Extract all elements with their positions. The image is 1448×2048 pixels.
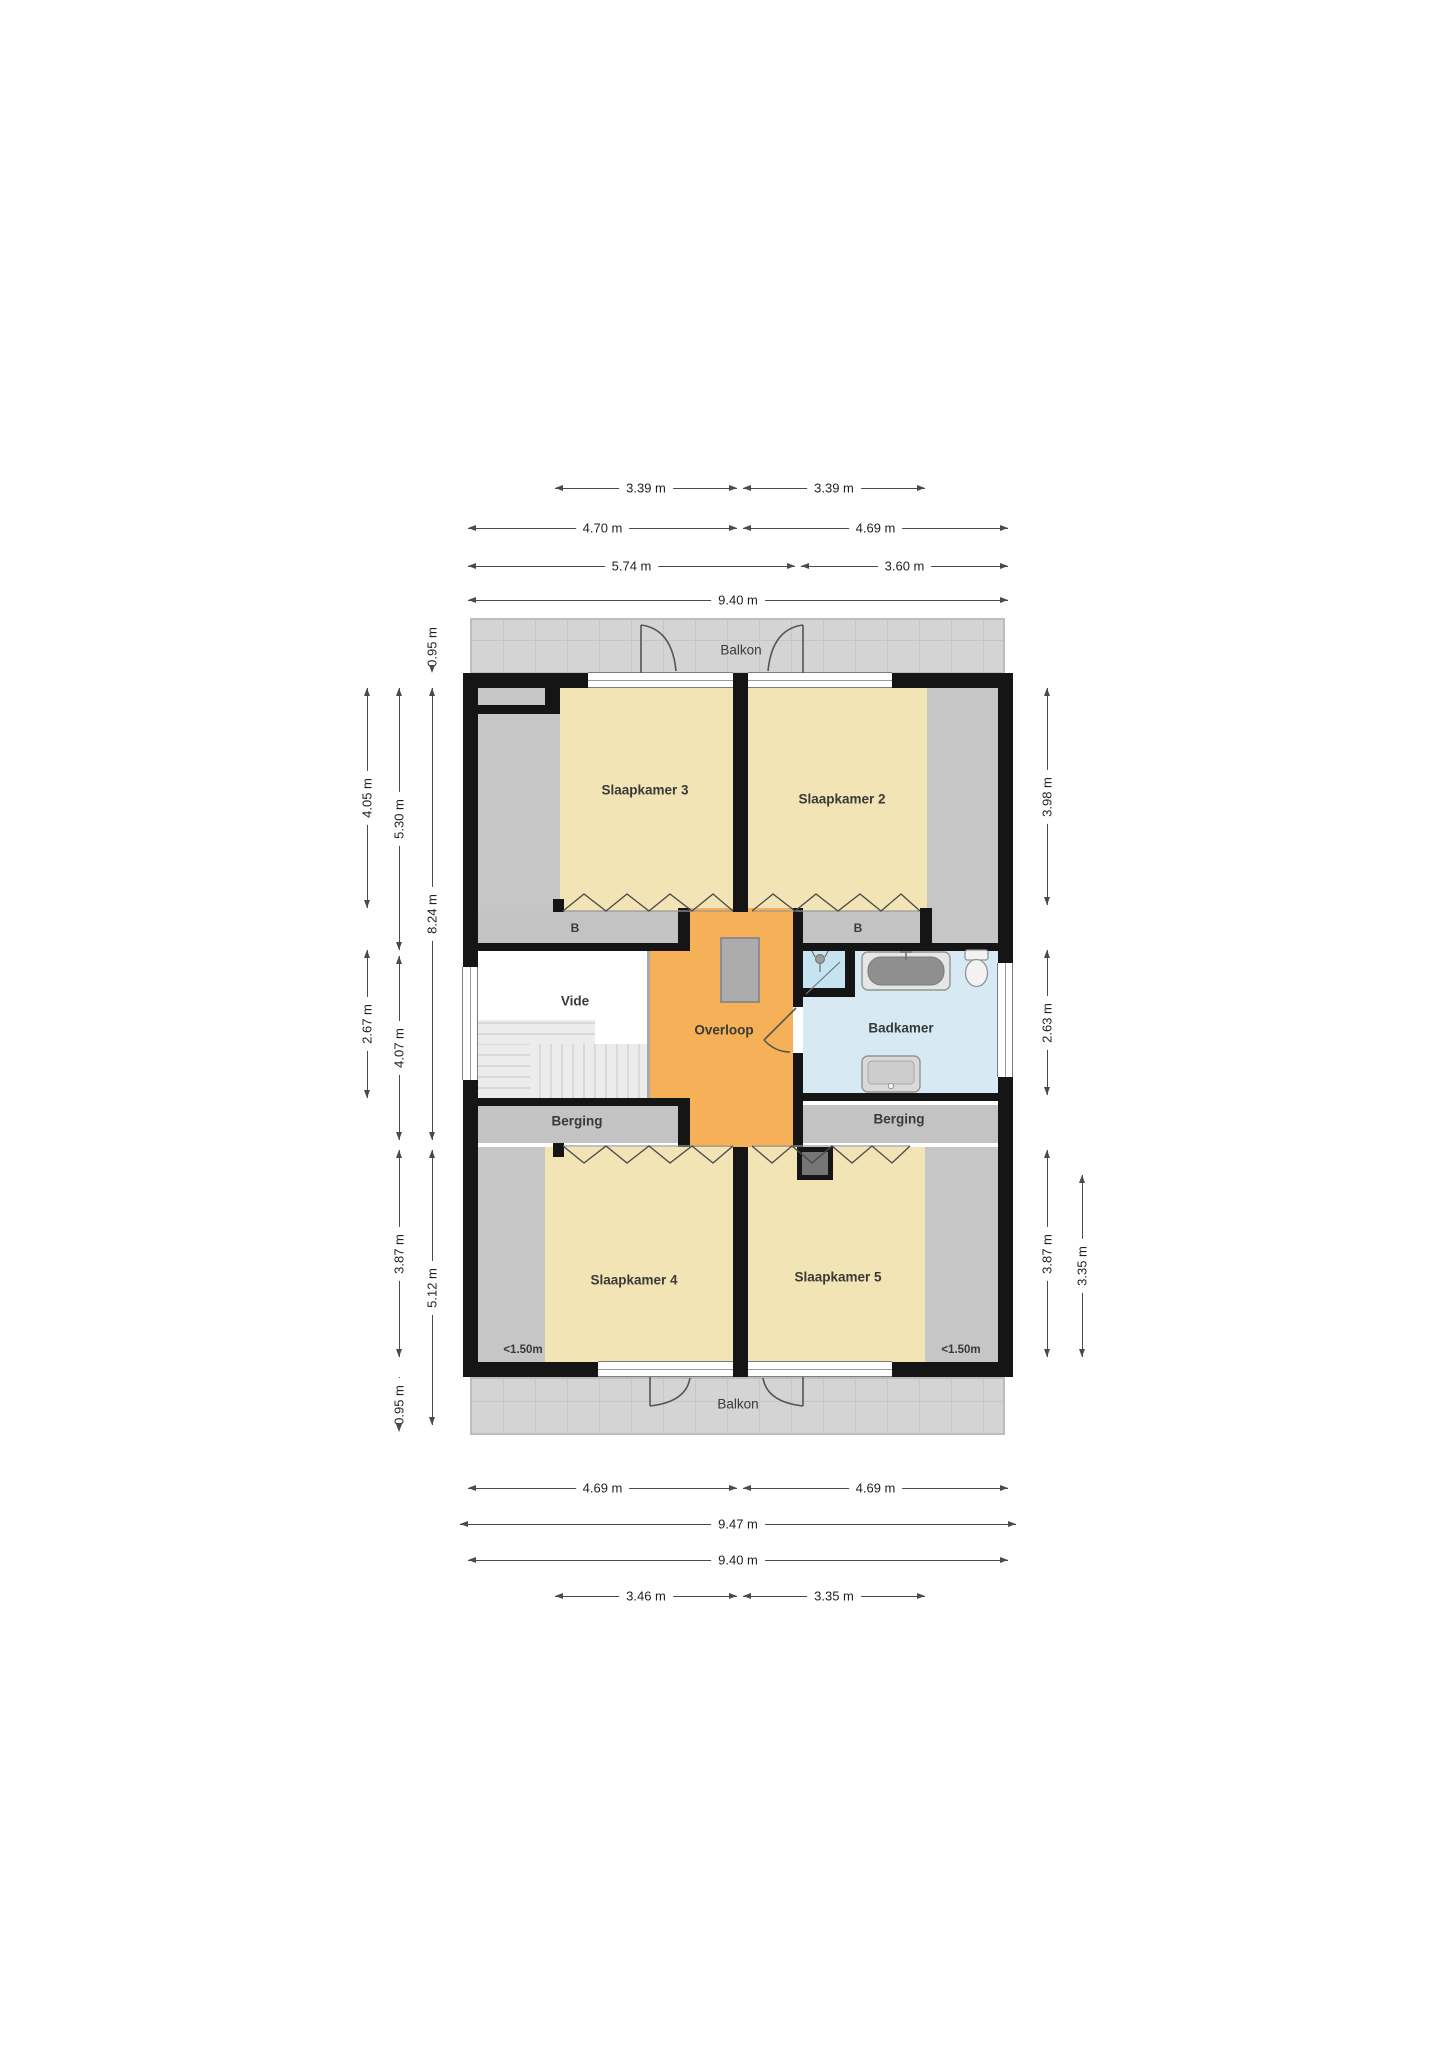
overloop-cabinet — [720, 937, 760, 1003]
wall-divider-bottom-bedrooms — [733, 1147, 748, 1362]
room-slaapkamer4 — [545, 1147, 733, 1362]
wall-closet-right-pier — [920, 908, 932, 943]
dim-bottom-r4-left: 3.46 m — [555, 1596, 737, 1597]
room-slaapkamer3 — [560, 688, 735, 912]
dim-top-r4-total: 9.40 m — [468, 600, 1008, 601]
dim-left-407: 4.07 m — [399, 956, 400, 1140]
dim-top-r2-right: 4.69 m — [743, 528, 1008, 529]
label-low-headroom-right: <1.50m — [941, 1344, 980, 1356]
room-slaapkamer2 — [748, 688, 927, 943]
room-slaapkamer5-low-strip — [925, 1147, 998, 1362]
dim-left-512: 5.12 m — [432, 1150, 433, 1425]
wall-closet-left-right — [678, 908, 690, 951]
label-badkamer: Badkamer — [868, 1021, 933, 1036]
wall-bifold-pier-bottom — [553, 1143, 564, 1157]
dim-left-bedroom-top: 4.05 m — [367, 688, 368, 908]
dim-left-bedroom-bottom: 3.87 m — [399, 1150, 400, 1357]
dim-left-530: 5.30 m — [399, 688, 400, 950]
window-bottom-right — [748, 1361, 892, 1377]
dim-top-r1-right: 3.39 m — [743, 488, 925, 489]
label-balkon-bottom: Balkon — [717, 1397, 758, 1412]
dim-top-r3-left: 5.74 m — [468, 566, 795, 567]
dim-bottom-r1-right: 4.69 m — [743, 1488, 1008, 1489]
window-left-wall — [462, 967, 478, 1080]
dim-bottom-r2-total: 9.47 m — [460, 1524, 1016, 1525]
label-overloop: Overloop — [694, 1023, 753, 1038]
wall-berging-left-top — [463, 1098, 690, 1106]
dim-right-badkamer: 2.63 m — [1047, 950, 1048, 1095]
label-slaapkamer3: Slaapkamer 3 — [601, 783, 688, 798]
dim-top-r2-left: 4.70 m — [468, 528, 737, 529]
dim-bottom-r1-left: 4.69 m — [468, 1488, 737, 1489]
label-low-headroom-left: <1.50m — [503, 1344, 542, 1356]
dim-left-balcony-top: 0.95 m — [432, 620, 433, 673]
room-slaapkamer2-low-strip — [927, 688, 998, 943]
dim-bottom-r4-right: 3.35 m — [743, 1596, 925, 1597]
wall-divider-top-bedrooms — [733, 683, 748, 912]
wall-shower-right — [845, 950, 855, 992]
wall-berging-left-right — [678, 1098, 690, 1147]
window-top-left — [588, 672, 733, 688]
dim-top-r1-left: 3.39 m — [555, 488, 737, 489]
hall-lower-column — [690, 1098, 793, 1147]
dim-bottom-r3-total: 9.40 m — [468, 1560, 1008, 1561]
label-slaapkamer4: Slaapkamer 4 — [590, 1273, 677, 1288]
window-top-right — [748, 672, 892, 688]
label-slaapkamer2: Slaapkamer 2 — [798, 792, 885, 807]
stairs-landing — [478, 1044, 530, 1098]
wall-closet-left-bottom — [463, 943, 690, 951]
duct-shaft — [797, 1147, 833, 1180]
dim-right-335: 3.35 m — [1082, 1175, 1083, 1357]
label-berging-left: Berging — [551, 1114, 602, 1129]
room-slaapkamer3-low-strip — [478, 688, 560, 912]
wall-shower-bottom — [803, 988, 855, 997]
dim-left-267: 2.67 m — [367, 950, 368, 1098]
stairs-upper-steps — [478, 1020, 595, 1044]
wall-stub-topleft-v — [545, 688, 560, 705]
window-bottom-left — [598, 1361, 733, 1377]
room-slaapkamer5 — [748, 1147, 925, 1362]
dim-top-r3-right: 3.60 m — [801, 566, 1008, 567]
wall-stub-topleft-h — [463, 705, 560, 714]
wall-badkamer-bottom — [793, 1093, 1013, 1101]
label-closet-left: B — [571, 921, 580, 935]
label-balkon-top: Balkon — [720, 643, 761, 658]
floorplan-page: { "rooms": { "balkon": "Balkon", "slaapk… — [0, 0, 1448, 2048]
wall-badkamer-top — [793, 943, 998, 951]
stairs-treads — [530, 1044, 650, 1098]
window-right-wall — [997, 963, 1013, 1077]
room-slaapkamer4-low-strip — [478, 1147, 545, 1362]
wall-bifold-pier-top — [553, 899, 564, 912]
label-vide: Vide — [561, 994, 589, 1009]
dim-right-bedroom-bottom: 3.87 m — [1047, 1150, 1048, 1357]
wall-bottom-facade — [463, 1362, 1013, 1377]
wall-overloop-badkamer-upper — [793, 908, 803, 1007]
dim-left-824: 8.24 m — [432, 688, 433, 1140]
dim-right-bedroom-top: 3.98 m — [1047, 688, 1048, 905]
label-closet-right: B — [854, 921, 863, 935]
dim-left-balcony-bottom: 0.95 m — [399, 1377, 400, 1432]
label-slaapkamer5: Slaapkamer 5 — [794, 1270, 881, 1285]
label-berging-right: Berging — [873, 1112, 924, 1127]
wall-berging-right-left — [793, 1098, 803, 1147]
